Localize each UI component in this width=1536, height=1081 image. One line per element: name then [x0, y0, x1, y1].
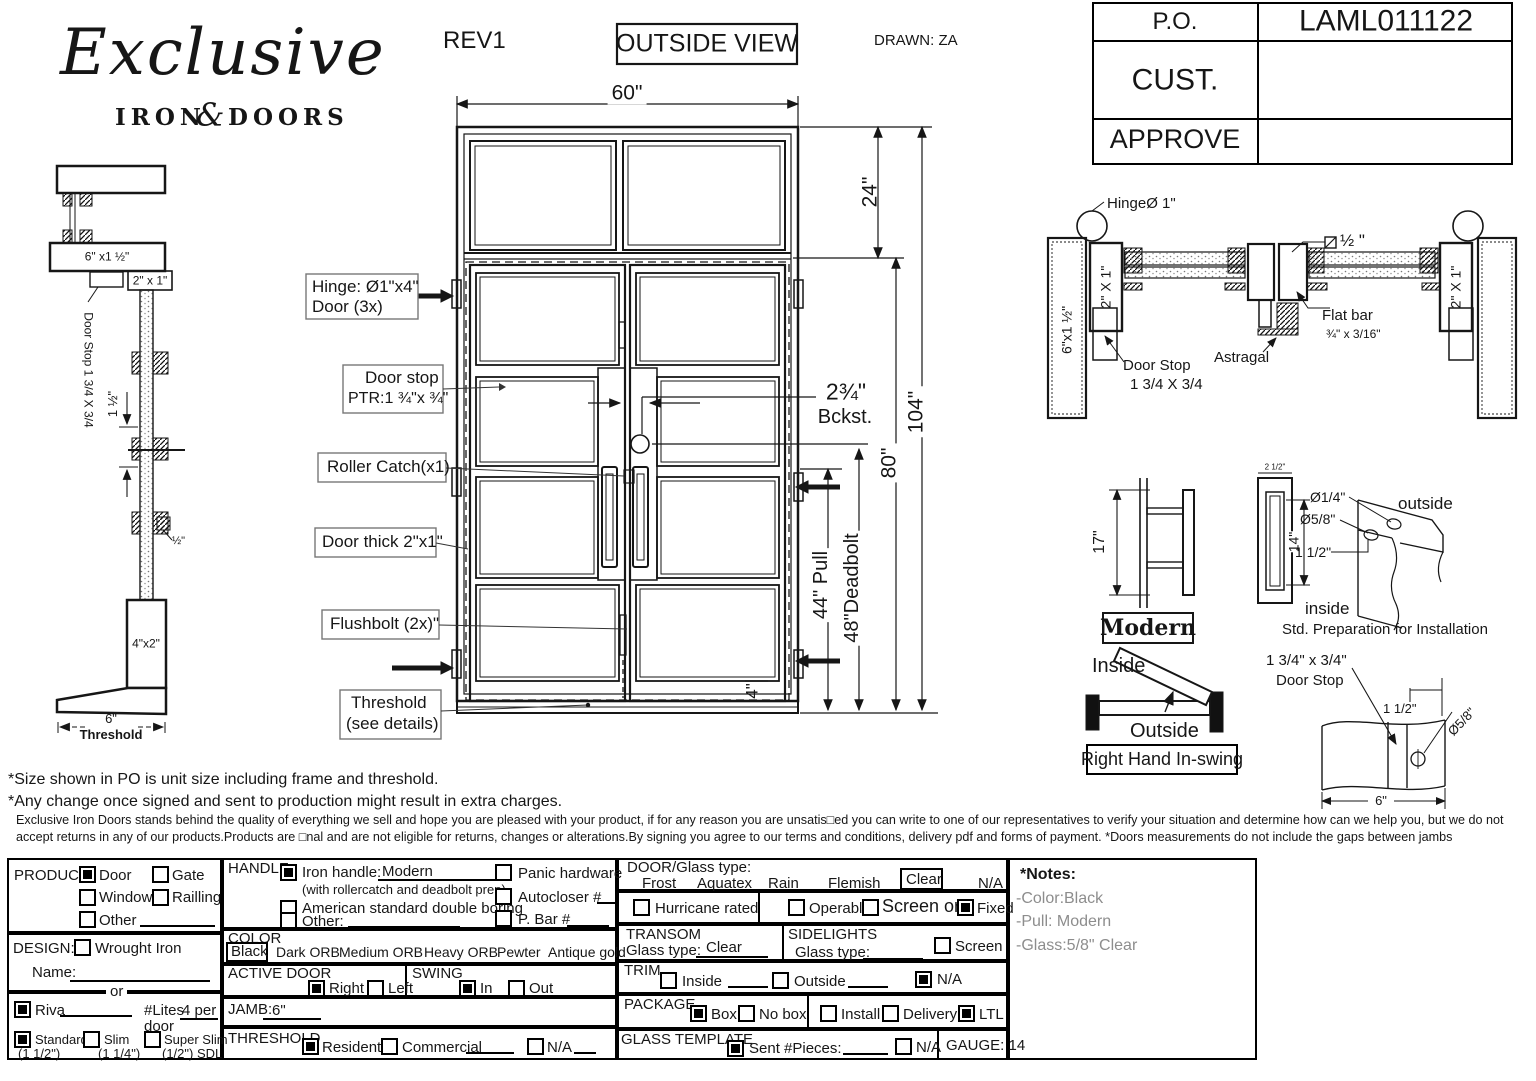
- notes-item-glass: -Glass:5/8" Clear: [1016, 937, 1137, 955]
- iron-handle-checkbox[interactable]: [280, 864, 297, 881]
- jamb-section-drawing: [1048, 202, 1516, 418]
- dim-backset: 2¾": [826, 379, 866, 404]
- superslim-sub: (1/2") SDL: [162, 1047, 222, 1061]
- notes-title: *Notes:: [1020, 866, 1076, 884]
- product-door-label: Door: [99, 868, 132, 885]
- logo-ampersand-icon: &: [196, 98, 224, 133]
- prep-inside-label: inside: [1305, 600, 1349, 619]
- threshold-na-label: N/A: [547, 1040, 572, 1057]
- jamb-form-label: JAMB:: [228, 1002, 272, 1019]
- swing-out-label: Out: [529, 981, 553, 998]
- prep-hole-dim-1: Ø1/4": [1310, 490, 1345, 505]
- glass-na-label: N/A: [916, 1040, 941, 1057]
- cust-label: CUST.: [1132, 64, 1219, 97]
- riva-label: Riva: [35, 1003, 65, 1020]
- view-title: OUTSIDE VIEW: [616, 30, 798, 58]
- threshold-commercial-checkbox[interactable]: [381, 1038, 398, 1055]
- dim-bottom-rail: 4": [744, 683, 763, 699]
- design-name-blank[interactable]: [70, 980, 210, 982]
- trim-na-label: N/A: [937, 972, 962, 989]
- or-dash-left: [10, 991, 98, 993]
- disclaimer-line1: *Size shown in PO is unit size including…: [8, 771, 438, 789]
- po-table-row-line-2: [1092, 118, 1513, 120]
- fixed-checkbox[interactable]: [957, 899, 974, 916]
- trim-label: TRIM: [624, 963, 661, 980]
- sidelights-glass-blank[interactable]: [863, 958, 923, 960]
- riva-checkbox[interactable]: [14, 1001, 31, 1018]
- superslim-checkbox[interactable]: [144, 1031, 161, 1048]
- riva-blank[interactable]: [60, 1015, 132, 1017]
- glass-sent-blank[interactable]: [843, 1053, 888, 1055]
- transom-glass-underline: [696, 956, 768, 958]
- design-wrought-label: Wrought Iron: [95, 941, 181, 958]
- disclaimer-paragraph: Exclusive Iron Doors stands behind the q…: [16, 812, 1516, 845]
- color-option-heavyorb[interactable]: Heavy ORB: [424, 945, 498, 960]
- handle-other-label: Other:: [302, 914, 344, 931]
- package-label: PACKAGE: [624, 997, 695, 1014]
- logo-doors: DOORS: [228, 105, 349, 130]
- stopdetail-size-line2: Door Stop: [1276, 673, 1344, 690]
- swing-label: SWING: [412, 966, 463, 983]
- doorglass-frost[interactable]: Frost: [642, 876, 676, 893]
- threshold-na-blank[interactable]: [574, 1052, 596, 1054]
- panic-label: Panic hardware: [518, 866, 622, 883]
- pbar-label: P. Bar #: [518, 912, 570, 929]
- callout-threshold-line1: Threshold: [351, 694, 427, 713]
- callout-flushbolt: Flushbolt (2x)": [330, 615, 439, 634]
- product-railling-checkbox[interactable]: [152, 889, 169, 906]
- screen-or-checkbox[interactable]: [862, 899, 879, 916]
- glass-sent-checkbox[interactable]: [727, 1040, 744, 1057]
- swing-caption: Right Hand In-swing: [1081, 750, 1243, 770]
- dim-pull: 44" Pull: [810, 548, 832, 622]
- active-right-checkbox[interactable]: [308, 980, 325, 997]
- swing-out-checkbox[interactable]: [508, 980, 525, 997]
- fixed-label: Fixed: [977, 901, 1014, 918]
- jamb-half-dim: ½ ": [1340, 232, 1365, 251]
- threshold-commercial-blank[interactable]: [466, 1052, 514, 1054]
- prep-offset-dim: 1 1/2": [1295, 545, 1331, 560]
- stopdetail-dim3: 6": [1375, 794, 1387, 808]
- door-spec-sheet: Exclusive IRON & DOORS REV1 OUTSIDE VIEW…: [0, 0, 1536, 1081]
- po-value: LAML011122: [1299, 5, 1473, 38]
- handle-other-checkbox[interactable]: [280, 912, 297, 929]
- notes-item-pull: -Pull: Modern: [1016, 913, 1111, 931]
- trim-na-checkbox[interactable]: [915, 971, 932, 988]
- callout-doorstop-line1: Door stop: [365, 369, 439, 388]
- trim-inside-blank[interactable]: [728, 986, 768, 988]
- stopdetail-dim1: 1 1/2": [1383, 702, 1417, 716]
- product-gate-label: Gate: [172, 868, 205, 885]
- dim-backset-label: Bckst.: [818, 406, 872, 428]
- jamb-underline: [263, 1018, 321, 1020]
- product-other-checkbox[interactable]: [79, 911, 96, 928]
- section-doorstop-label: Door Stop 1 3/4 X 3/4: [81, 312, 94, 427]
- dim-width: 60": [608, 81, 647, 104]
- package-box-checkbox[interactable]: [690, 1005, 707, 1022]
- doorglass-flemish[interactable]: Flemish: [828, 876, 881, 893]
- product-railling-label: Railling: [172, 890, 221, 907]
- dim-deadbolt: 48"Deadbolt: [841, 530, 863, 645]
- product-other-blank[interactable]: [140, 925, 215, 927]
- hurricane-label: Hurricane rated: [655, 901, 758, 918]
- package-install-label: Install: [841, 1007, 880, 1024]
- threshold-commercial-label: Commercial: [402, 1040, 482, 1057]
- operable-checkbox[interactable]: [788, 899, 805, 916]
- package-box-label: Box: [711, 1007, 737, 1024]
- callout-roller: Roller Catch(x1): [327, 458, 450, 477]
- po-label: P.O.: [1153, 9, 1198, 35]
- section-half-dim: ½": [172, 535, 185, 547]
- glass-na-checkbox[interactable]: [895, 1038, 912, 1055]
- jamb-tube-right-size: 2" X 1": [1448, 266, 1463, 309]
- product-other-label: Other: [99, 913, 137, 930]
- gauge-label: GAUGE: 14: [946, 1038, 1025, 1055]
- jamb-flatbar-label: Flat bar: [1322, 308, 1373, 325]
- iron-handle-underline: [378, 879, 500, 881]
- notes-item-color: -Color:Black: [1016, 890, 1103, 908]
- trim-inside-label: Inside: [682, 974, 722, 991]
- sidelights-screen-label: Screen: [955, 939, 1003, 956]
- prep-outside-label: outside: [1398, 495, 1453, 514]
- autocloser-checkbox[interactable]: [495, 888, 512, 905]
- disclaimer-line2: *Any change once signed and sent to prod…: [8, 793, 562, 811]
- hurricane-checkbox[interactable]: [633, 899, 650, 916]
- active-left-label: Left: [388, 981, 413, 998]
- dim-door-height: 80": [877, 444, 900, 483]
- po-table-row-line-1: [1092, 40, 1513, 42]
- swing-inside-label: Inside: [1092, 655, 1145, 677]
- product-gate-checkbox[interactable]: [152, 866, 169, 883]
- product-door-checkbox[interactable]: [79, 866, 96, 883]
- active-right-label: Right: [329, 981, 364, 998]
- transom-side-divider: [782, 924, 784, 961]
- pbar-checkbox[interactable]: [495, 910, 512, 927]
- callout-hinge-line2: Door (3x): [312, 298, 383, 317]
- transom-glass-value: Clear: [706, 940, 742, 957]
- active-left-checkbox[interactable]: [367, 980, 384, 997]
- swing-outside-label: Outside: [1130, 720, 1199, 742]
- section-threshold-caption: Threshold: [80, 728, 143, 742]
- autocloser-blank[interactable]: [597, 902, 615, 904]
- design-wrought-checkbox[interactable]: [74, 939, 91, 956]
- callout-threshold-line2: (see details): [346, 715, 439, 734]
- product-window-checkbox[interactable]: [79, 889, 96, 906]
- jamb-tube-left-size: 2" X 1": [1098, 266, 1113, 309]
- trim-outside-blank[interactable]: [848, 986, 888, 988]
- sidelights-label: SIDELIGHTS: [788, 927, 877, 944]
- product-window-label: Window: [99, 890, 152, 907]
- trim-outside-label: Outside: [794, 974, 846, 991]
- package-nobox-label: No box: [759, 1007, 807, 1024]
- trim-inside-checkbox[interactable]: [660, 972, 677, 989]
- color-option-pewter[interactable]: Pewter: [497, 945, 541, 960]
- pbar-blank[interactable]: [567, 925, 609, 927]
- callout-doorstop-line2: PTR:1 ¾"x ¾": [348, 390, 448, 408]
- package-delivery-label: Delivery: [903, 1007, 957, 1024]
- stopdetail-size-line1: 1 3/4" x 3/4": [1266, 653, 1347, 670]
- approve-label: APPROVE: [1110, 125, 1241, 155]
- form-cell-notes: [1008, 858, 1257, 1060]
- section-sill-size: 4"x2": [132, 637, 160, 650]
- dim-transom: 24": [858, 177, 881, 208]
- jamb-doorstop-line2: 1 3/4 X 3/4: [1130, 377, 1203, 394]
- package-nobox-checkbox[interactable]: [738, 1005, 755, 1022]
- panic-checkbox[interactable]: [495, 864, 512, 881]
- jamb-doorstop-line1: Door Stop: [1123, 358, 1191, 375]
- slim-sub: (1 1/4"): [98, 1047, 140, 1061]
- handle-height-dim: 17": [1091, 530, 1109, 553]
- section-jamb-size: 2" x 1": [133, 274, 168, 287]
- sidelights-screen-checkbox[interactable]: [934, 937, 951, 954]
- doorglass-aquatex[interactable]: Aquatex: [697, 876, 752, 893]
- jamb-left-size: 6"x1 ½": [1059, 306, 1074, 354]
- design-label: DESIGN:: [13, 941, 75, 958]
- autocloser-label: Autocloser #: [518, 890, 601, 907]
- package-delivery-checkbox[interactable]: [882, 1005, 899, 1022]
- threshold-residential-checkbox[interactable]: [302, 1038, 319, 1055]
- package-install-checkbox[interactable]: [820, 1005, 837, 1022]
- doorglass-selected: Clear: [906, 872, 942, 889]
- drawn-by-label: DRAWN: ZA: [874, 33, 958, 50]
- transom-glass-label: Glass type:: [626, 943, 701, 960]
- prep-caption: Std. Preparation for Installation: [1282, 622, 1488, 639]
- iron-handle-label: Iron handle:: [302, 865, 381, 882]
- design-or-label: or: [106, 984, 127, 1001]
- color-option-darkorb[interactable]: Dark ORB: [276, 945, 340, 960]
- standard-sub: (1 1/2"): [18, 1047, 60, 1061]
- po-table-divider: [1257, 2, 1259, 165]
- callout-hinge-line1: Hinge: Ø1"x4": [312, 278, 419, 297]
- package-divider: [807, 994, 809, 1029]
- logo-script: Exclusive: [60, 18, 386, 88]
- iron-handle-sub: (with rollercatch and deadbolt prep): [302, 883, 506, 897]
- section-gap-dim: 1 ½": [106, 391, 120, 417]
- package-ltl-checkbox[interactable]: [958, 1005, 975, 1022]
- handle-top-dim: 2 1/2": [1265, 464, 1286, 473]
- section-head-size: 6" x1 ½": [85, 250, 130, 263]
- doorglass-na[interactable]: N/A: [978, 876, 1003, 893]
- screen-or-label: Screen or: [882, 897, 960, 917]
- glass-sent-label: Sent #Pieces:: [749, 1041, 842, 1058]
- jamb-astragal-label: Astragal: [1214, 350, 1269, 367]
- package-ltl-label: LTL: [979, 1007, 1004, 1024]
- lites-underline: [180, 1018, 218, 1020]
- callout-door-thick: Door thick 2"x1": [322, 533, 443, 552]
- logo-iron: IRON: [115, 105, 206, 130]
- section-width-dim: 6": [105, 712, 117, 726]
- revision-label: REV1: [443, 28, 506, 54]
- swing-in-label: In: [480, 981, 493, 998]
- swing-in-checkbox[interactable]: [459, 980, 476, 997]
- color-option-mediumorb[interactable]: Medium ORB: [339, 945, 423, 960]
- handle-other-blank[interactable]: [348, 926, 460, 928]
- sidelights-glass-label: Glass type:: [795, 945, 870, 962]
- color-option-antiquegold[interactable]: Antique gold: [548, 945, 626, 960]
- handle-style-name: Modern: [1100, 616, 1196, 640]
- or-dash-right: [130, 991, 218, 993]
- jamb-hinge-label: HingeØ 1": [1107, 196, 1176, 213]
- doorglass-rain[interactable]: Rain: [768, 876, 799, 893]
- threshold-na-checkbox[interactable]: [527, 1038, 544, 1055]
- prep-hole-dim-2: Ø5/8": [1300, 512, 1335, 527]
- dim-overall: 104": [904, 387, 927, 438]
- color-selected: Black: [231, 944, 268, 961]
- jamb-flatbar-size: ¾" x 3/16": [1326, 328, 1381, 341]
- trim-outside-checkbox[interactable]: [772, 972, 789, 989]
